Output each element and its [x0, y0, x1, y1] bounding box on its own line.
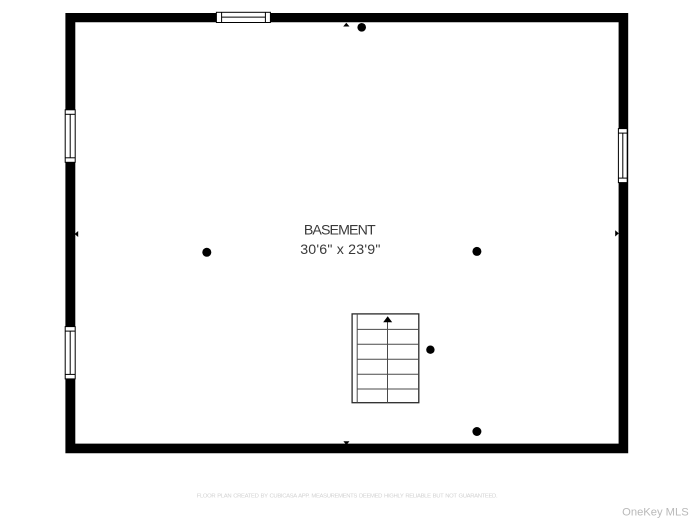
svg-text:OneKey MLS: OneKey MLS [622, 507, 689, 519]
svg-text:30'6" x 23'9": 30'6" x 23'9" [300, 242, 380, 258]
svg-text:FLOOR PLAN CREATED BY CUBICASA: FLOOR PLAN CREATED BY CUBICASA APP. MEAS… [197, 494, 498, 500]
svg-text:BASEMENT: BASEMENT [304, 223, 376, 239]
